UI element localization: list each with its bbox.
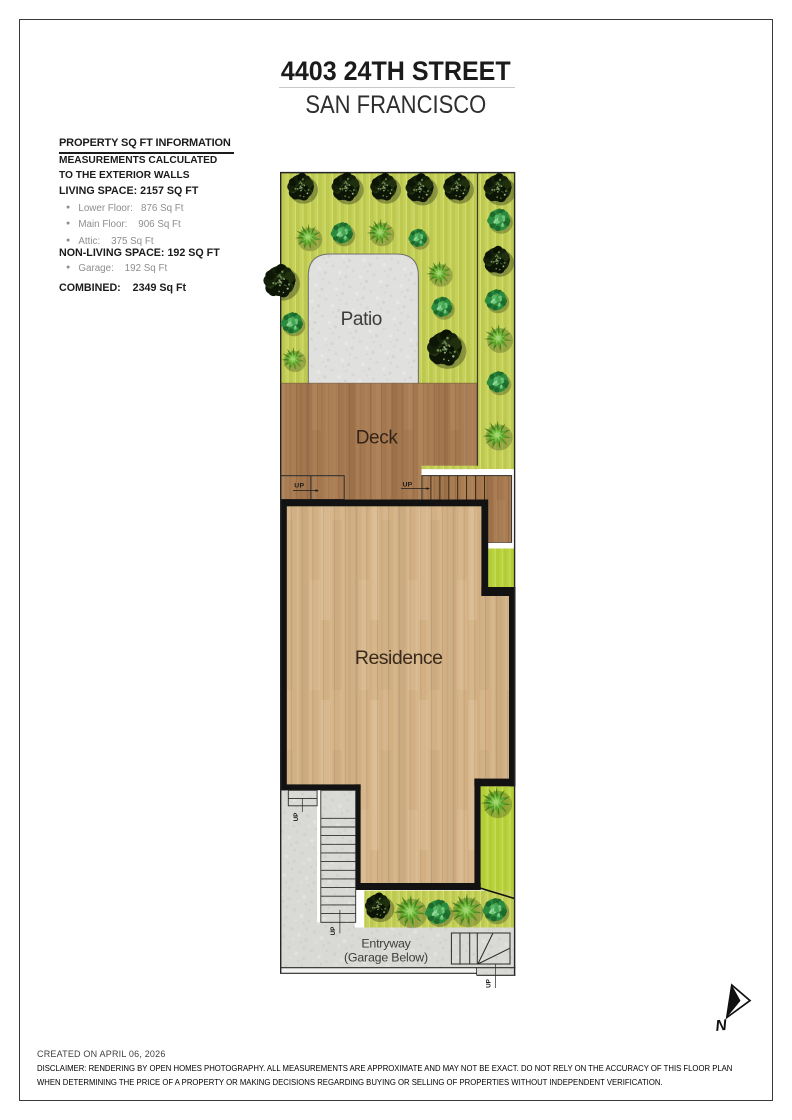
svg-text:Residence: Residence [355, 647, 443, 669]
svg-text:UP: UP [330, 927, 337, 936]
svg-text:N: N [715, 1017, 729, 1035]
svg-text:Patio: Patio [341, 309, 382, 330]
svg-text:Entryway: Entryway [361, 937, 411, 951]
svg-text:UP: UP [486, 979, 493, 988]
svg-text:UP: UP [402, 482, 412, 489]
svg-text:UP: UP [294, 482, 304, 489]
svg-text:(Garage Below): (Garage Below) [344, 951, 428, 965]
svg-text:Deck: Deck [356, 427, 399, 448]
svg-text:UP: UP [293, 813, 300, 822]
